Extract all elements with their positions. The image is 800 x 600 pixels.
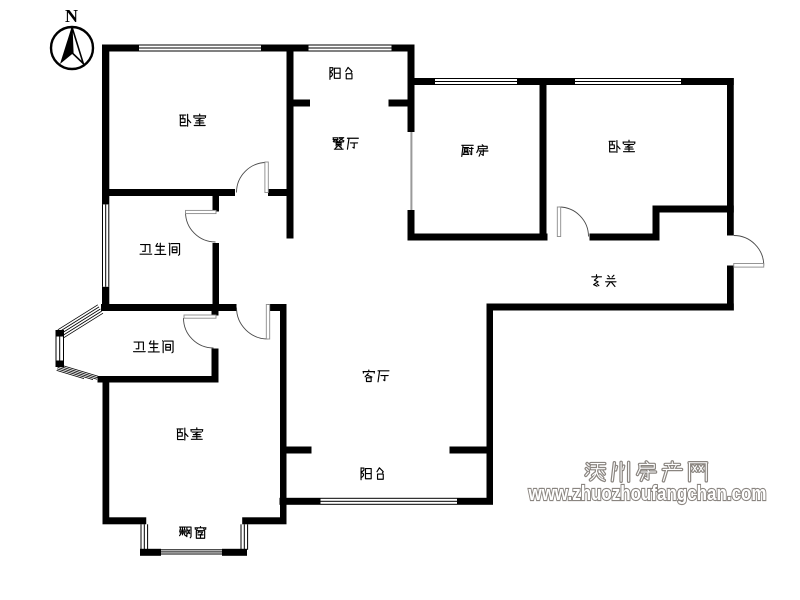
svg-text:www.zhuozhoufangchan.com: www.zhuozhoufangchan.com xyxy=(528,482,767,505)
svg-text:N: N xyxy=(65,6,78,26)
